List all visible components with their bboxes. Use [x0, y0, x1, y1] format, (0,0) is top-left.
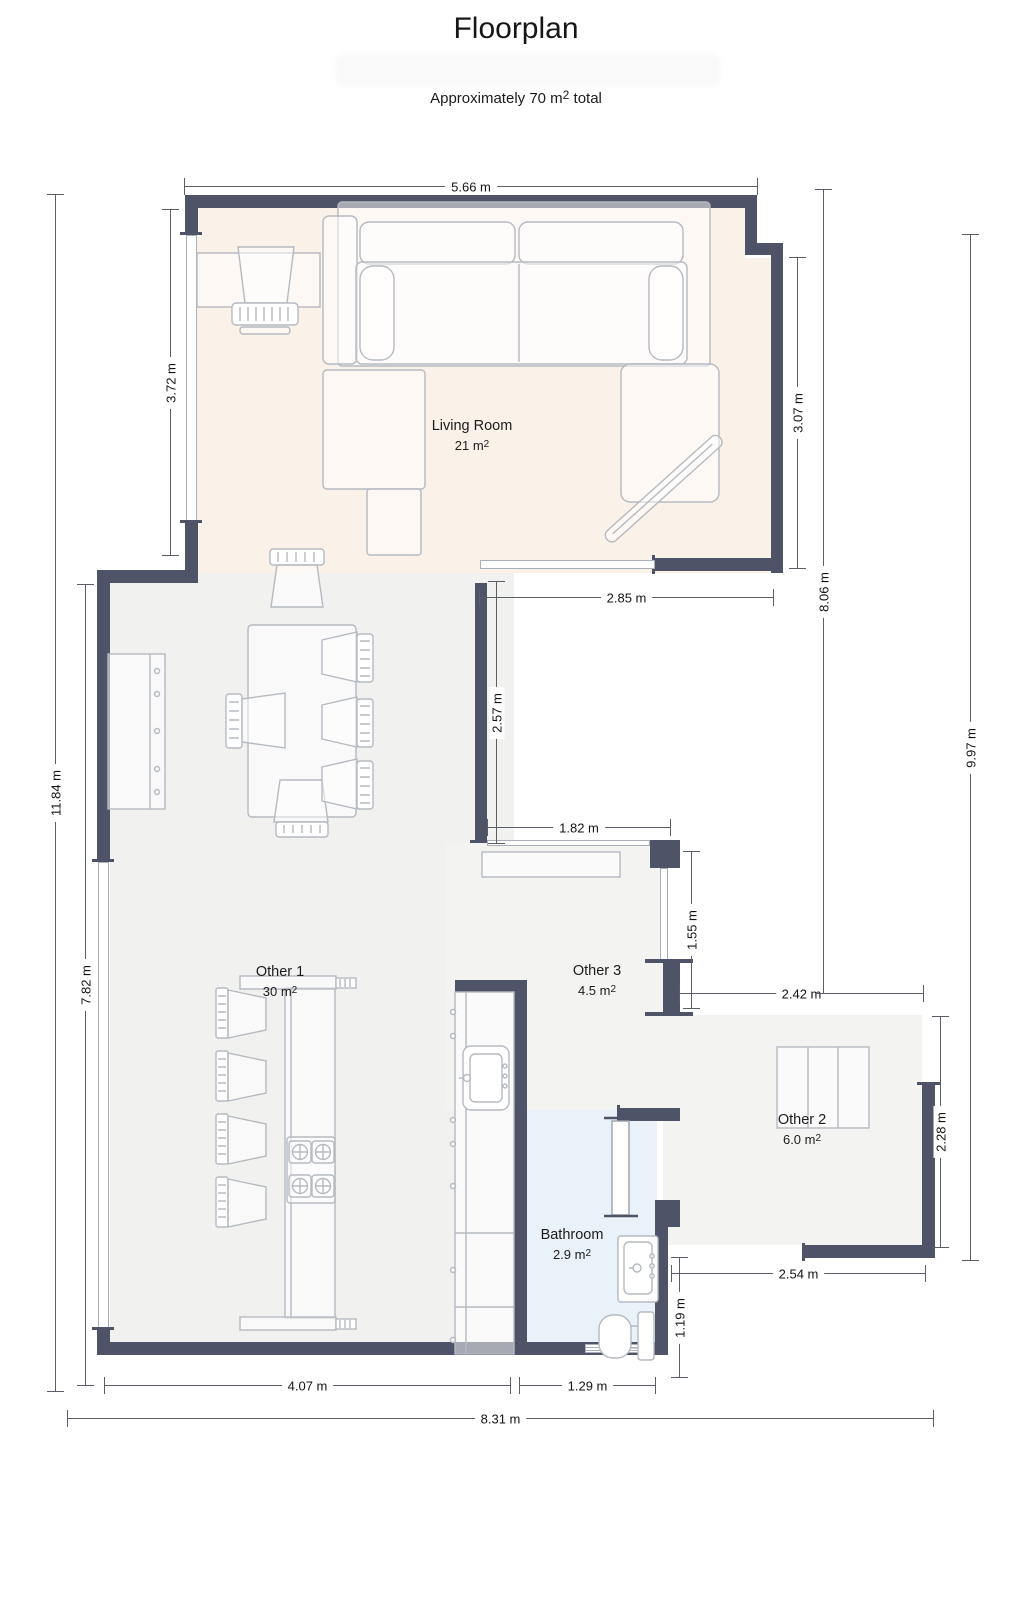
dining-chair-top — [270, 549, 324, 607]
room-name: Living Room — [432, 418, 513, 434]
hall-console — [482, 852, 620, 877]
room-area: 6.0 m2 — [778, 1132, 826, 1147]
dim-label: 2.28 m — [934, 1106, 949, 1158]
dim-label: 1.55 m — [685, 904, 700, 956]
dim-living-bottom-opening: 2.85 m — [480, 597, 773, 598]
dim-bottom-bath: 1.29 m — [520, 1385, 655, 1386]
room-name: Bathroom — [541, 1227, 604, 1243]
furniture-layer — [0, 0, 1032, 1600]
room-name: Other 2 — [778, 1112, 826, 1128]
room-label-other-2: Other 2 6.0 m2 — [778, 1112, 826, 1147]
dim-label: 5.66 m — [445, 180, 497, 195]
sideboard — [108, 654, 165, 809]
dim-mid-wall: 2.57 m — [496, 582, 497, 843]
room-area: 21 m2 — [432, 438, 513, 453]
room-area: 4.5 m2 — [573, 983, 621, 998]
dim-top-width: 5.66 m — [185, 186, 757, 187]
cooktop — [287, 1137, 335, 1203]
dim-bathroom-right: 1.19 m — [679, 1258, 680, 1377]
room-label-other-1: Other 1 30 m2 — [256, 964, 304, 999]
dim-left-outer: 11.84 m — [55, 195, 56, 1391]
dim-left-inner: 7.82 m — [85, 585, 86, 1385]
bathroom-vanity — [618, 1236, 658, 1302]
dim-label: 8.06 m — [817, 566, 832, 618]
dim-bottom-total: 8.31 m — [68, 1418, 933, 1419]
dining-chair-right-3 — [322, 759, 373, 809]
living-table — [323, 370, 425, 555]
dim-label: 3.07 m — [791, 387, 806, 439]
toilet — [599, 1312, 654, 1360]
dim-right-inner: 8.06 m — [823, 190, 824, 993]
room-label-other-3: Other 3 4.5 m2 — [573, 963, 621, 998]
dim-living-left: 3.72 m — [170, 210, 171, 555]
dining-chair-left — [226, 693, 285, 748]
dim-label: 11.84 m — [49, 764, 64, 822]
dim-right-outer: 9.97 m — [970, 235, 971, 1260]
dim-label: 1.19 m — [673, 1292, 688, 1344]
dim-hall-right: 1.55 m — [691, 852, 692, 1008]
dim-label: 2.57 m — [490, 687, 505, 739]
dim-living-right: 3.07 m — [797, 258, 798, 568]
room-name: Other 1 — [256, 964, 304, 980]
dim-other2-bottom: 2.54 m — [672, 1273, 925, 1274]
room-name: Other 3 — [573, 963, 621, 979]
floorplan-page: Floorplan Approximately 70 m2 total — [0, 0, 1032, 1600]
room-label-bathroom: Bathroom 2.9 m2 — [541, 1227, 604, 1262]
kitchen-counter — [451, 992, 515, 1354]
bathroom-door — [604, 1118, 638, 1216]
dim-bottom-left: 4.07 m — [105, 1385, 510, 1386]
dining-chair-right-2 — [322, 697, 373, 747]
room-area: 30 m2 — [256, 984, 304, 999]
room-label-living-room: Living Room 21 m2 — [432, 418, 513, 453]
dim-label: 8.31 m — [475, 1412, 527, 1427]
dim-label: 2.54 m — [773, 1267, 825, 1282]
dining-chair-right-1 — [322, 632, 373, 682]
dim-other2-top: 2.42 m — [680, 993, 923, 994]
bar-stools — [216, 988, 266, 1227]
room-area: 2.9 m2 — [541, 1247, 604, 1262]
dim-label: 9.97 m — [964, 722, 979, 774]
dim-label: 7.82 m — [79, 959, 94, 1011]
dim-label: 3.72 m — [164, 357, 179, 409]
dim-label: 4.07 m — [282, 1379, 334, 1394]
dim-other2-right: 2.28 m — [940, 1017, 941, 1247]
dim-label: 2.85 m — [601, 591, 653, 606]
dim-label: 1.29 m — [562, 1379, 614, 1394]
dining-chair-bottom — [274, 780, 328, 837]
dim-hall-top: 1.82 m — [488, 827, 670, 828]
dim-label: 2.42 m — [776, 987, 828, 1002]
dim-label: 1.82 m — [553, 821, 605, 836]
